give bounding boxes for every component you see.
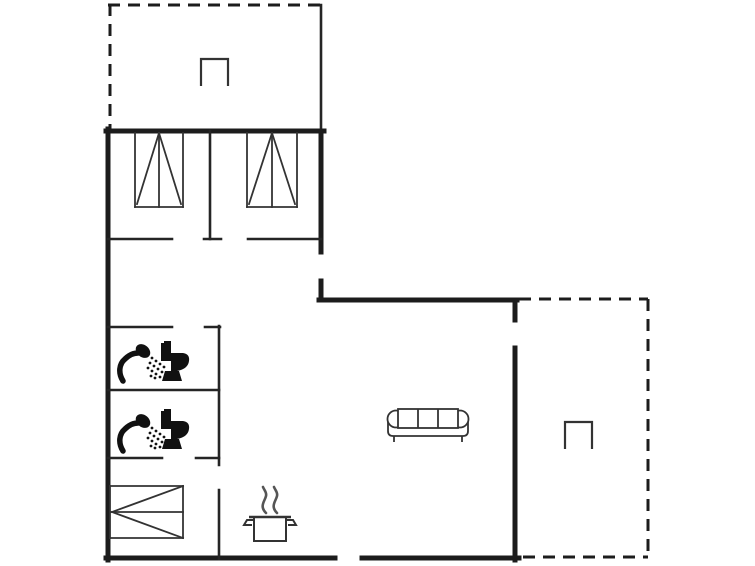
shower-spray-dot (159, 376, 162, 379)
shower-spray-dot (155, 360, 158, 363)
shower-spray-dot (150, 445, 153, 448)
shower-spray-dot (163, 366, 166, 369)
shower-spray-dot (159, 363, 162, 366)
shower-spray-dot (149, 432, 152, 435)
shower-spray-dot (161, 441, 164, 444)
sofa-cushions (398, 409, 458, 428)
toilet-tank (161, 343, 171, 361)
shower-spray-dot (159, 446, 162, 449)
shower-spray-dot (157, 438, 160, 441)
shower-spray-dot (161, 371, 164, 374)
shower-spray-dot (153, 435, 156, 438)
shower-spray-dot (147, 367, 150, 370)
shower-spray-dot (159, 433, 162, 436)
shower-spray-dot (157, 368, 160, 371)
shower-spray-dot (155, 430, 158, 433)
shower-spray-dot (151, 357, 154, 360)
floor-plan-canvas (0, 0, 755, 566)
shower-spray-dot (150, 375, 153, 378)
floor-plan (0, 0, 755, 566)
shower-spray-dot (155, 373, 158, 376)
shower-spray-dot (151, 440, 154, 443)
shower-spray-dot (154, 377, 157, 380)
shower-spray-dot (147, 437, 150, 440)
plan-background (0, 0, 755, 566)
toilet-base (162, 371, 182, 381)
shower-spray-dot (153, 365, 156, 368)
shower-spray-dot (151, 370, 154, 373)
toilet-base (162, 439, 182, 449)
pot-body (254, 517, 286, 541)
shower-spray-dot (151, 427, 154, 430)
shower-spray-dot (155, 443, 158, 446)
shower-spray-dot (149, 362, 152, 365)
shower-spray-dot (163, 436, 166, 439)
shower-spray-dot (154, 447, 157, 450)
toilet-tank (161, 411, 171, 429)
